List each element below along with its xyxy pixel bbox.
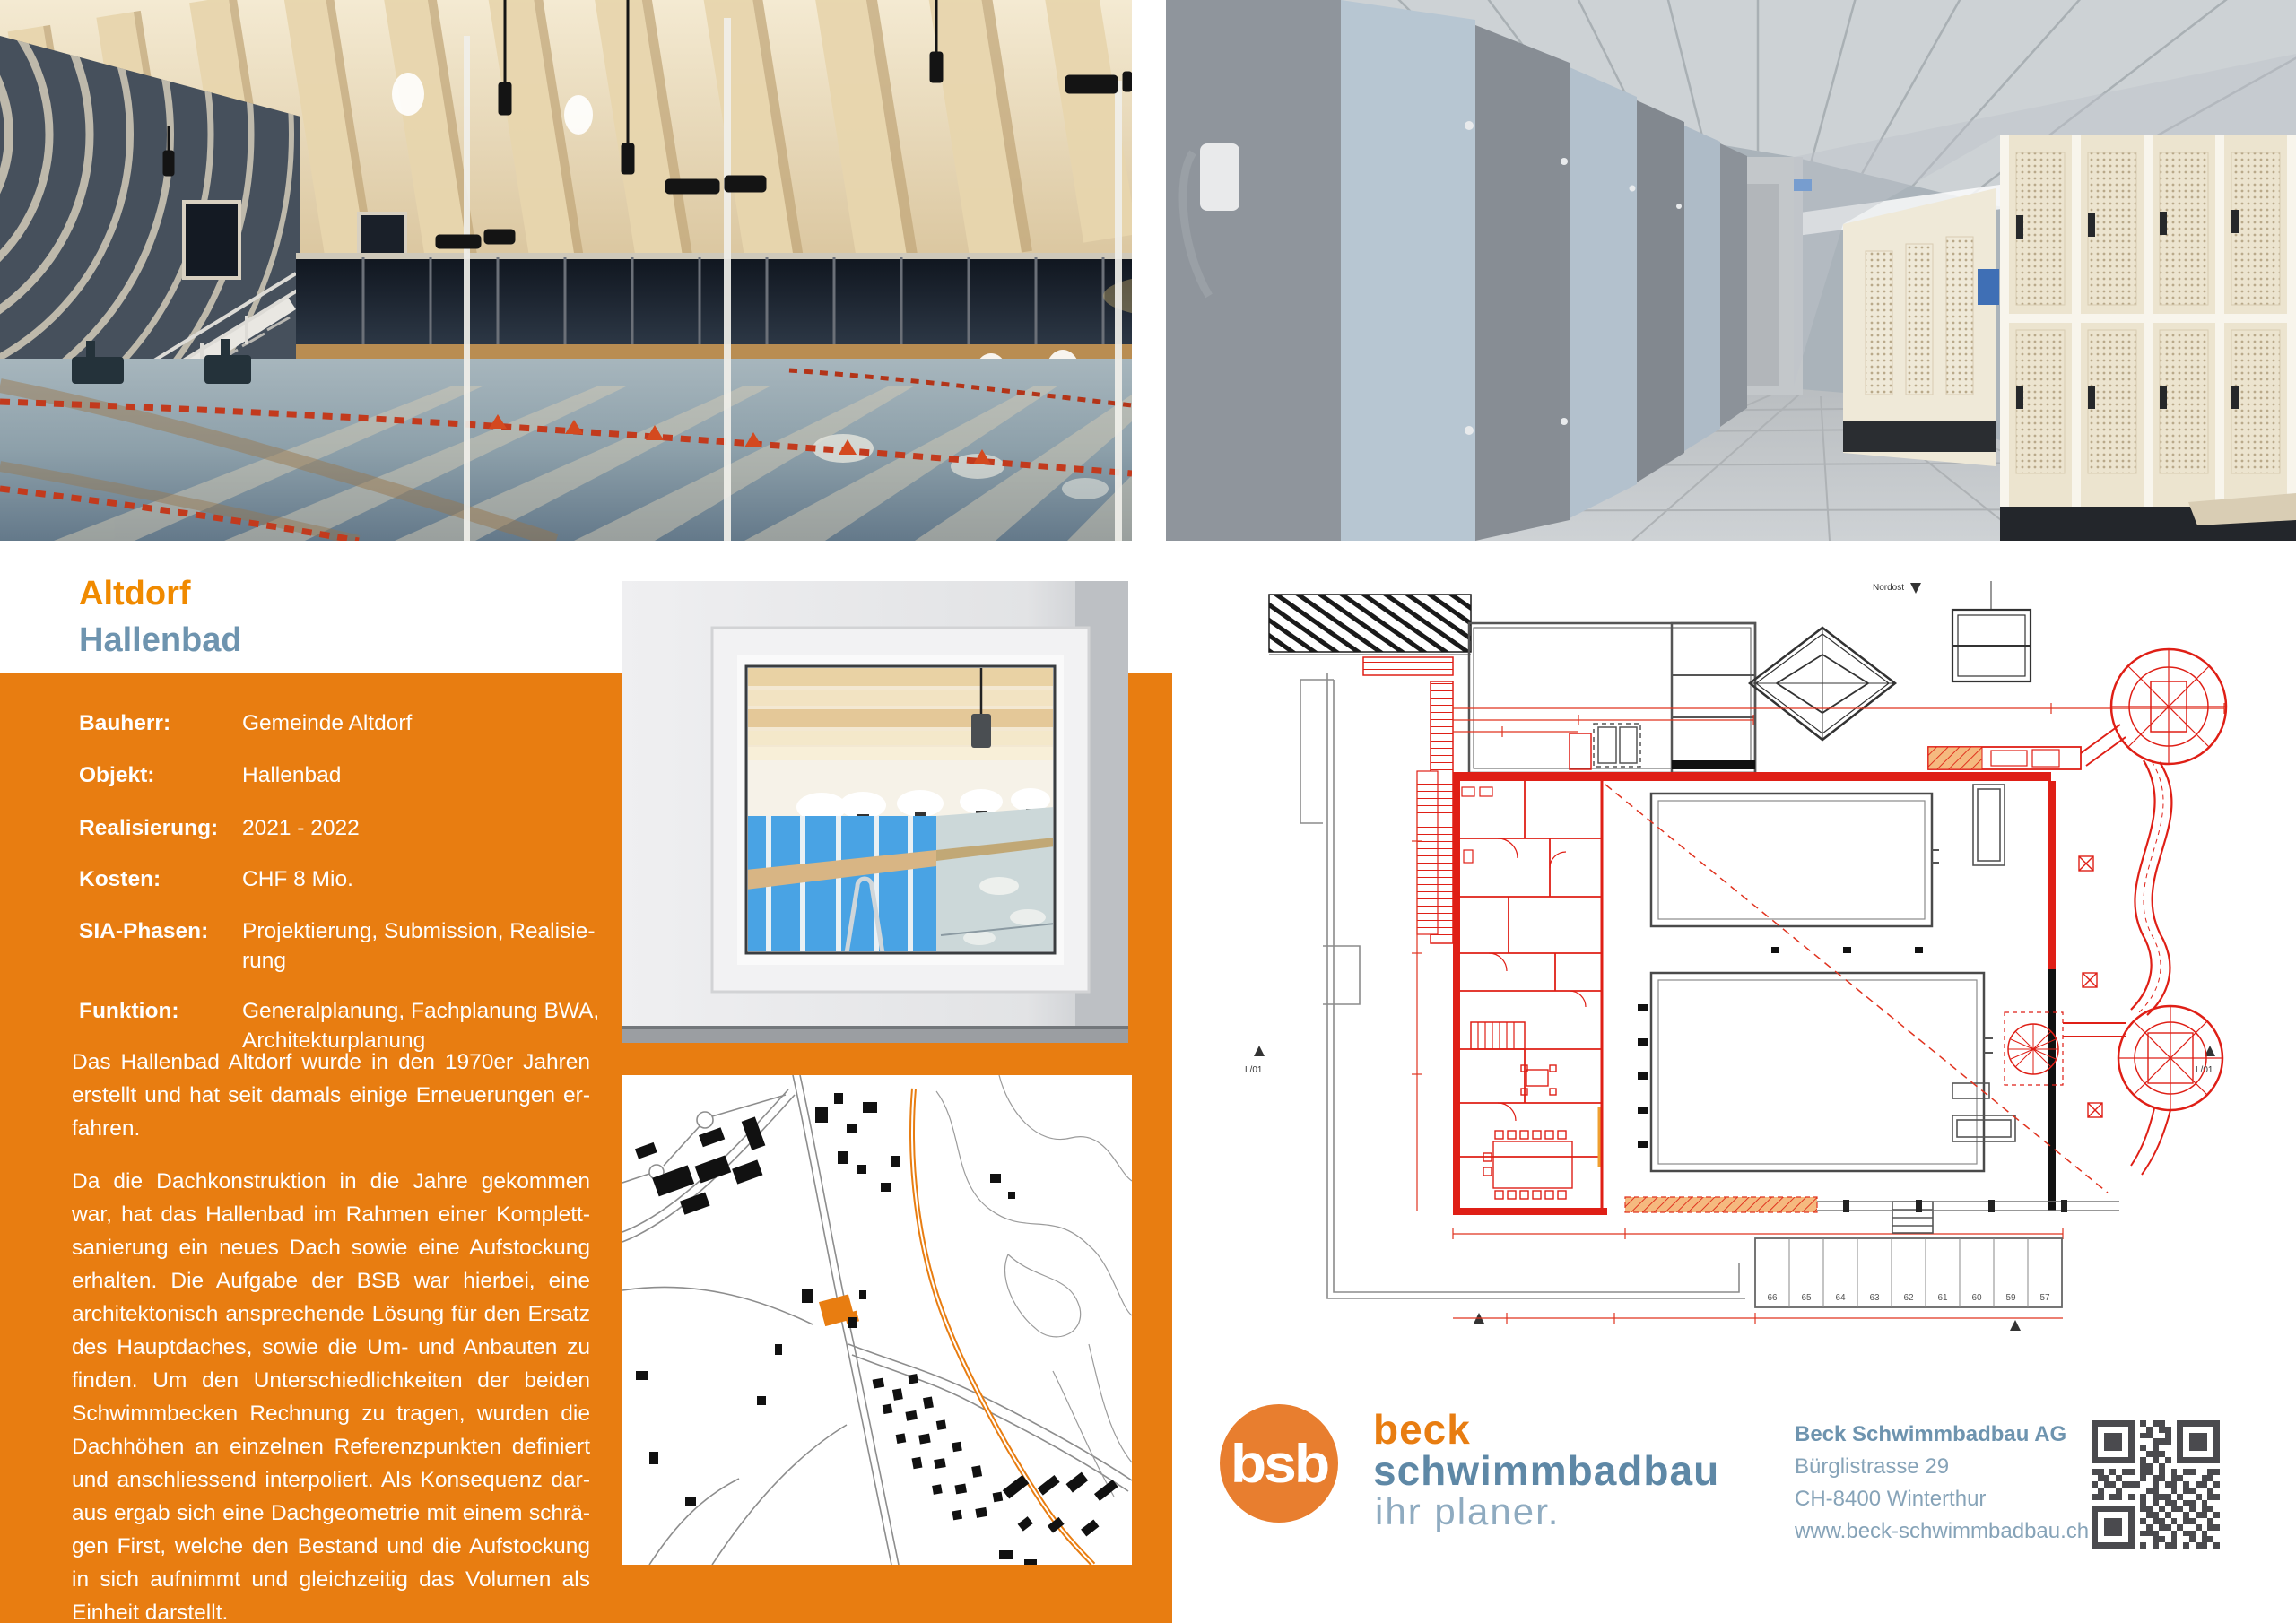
title-project-type: Hallenbad — [79, 617, 242, 664]
field-label: Kosten: — [79, 864, 161, 894]
view-wood-beams — [746, 666, 1055, 770]
address-street: Bürglistrasse 29 — [1795, 1451, 2089, 1483]
pool-upper — [1651, 794, 1932, 926]
field-label: Funktion: — [79, 996, 179, 1026]
site-map — [622, 1075, 1132, 1565]
page-title: Altdorf Hallenbad — [79, 570, 242, 664]
brochure-page: Altdorf Hallenbad Bauherr: Gemeinde Altd… — [0, 0, 2296, 1623]
photo-changing-rooms — [1166, 0, 2296, 541]
exterior-stair — [1363, 657, 1453, 675]
pool-view — [746, 666, 1055, 953]
description-paragraph-1: Das Hallenbad Altdorf wurde in den 1970e… — [72, 1046, 590, 1145]
logo-word-schwimmbadbau: schwimmbadbau — [1373, 1446, 1719, 1495]
qr-code — [2092, 1420, 2220, 1549]
existing-wall — [2048, 969, 2056, 1211]
photo-window-view — [622, 581, 1128, 1043]
floor-plan: Nordost L/01 L/01 — [1193, 554, 2296, 1408]
bsb-logo: bsb — [1220, 1404, 1338, 1523]
field-value: Projektierung, Submission, Realisie-rung — [242, 916, 628, 976]
pool-lower — [1651, 973, 1984, 1171]
field-value: 2021 - 2022 — [242, 813, 628, 843]
field-label: Objekt: — [79, 760, 154, 790]
company-name: Beck Schwimmbadbau AG — [1795, 1419, 2089, 1451]
locker-sign — [1978, 269, 1999, 305]
svg-text:64: 64 — [1835, 1293, 1846, 1303]
field-label: SIA-Phasen: — [79, 916, 208, 946]
field-label: Bauherr: — [79, 708, 170, 738]
svg-text:57: 57 — [2039, 1293, 2050, 1303]
svg-text:63: 63 — [1869, 1293, 1880, 1303]
svg-text:60: 60 — [1971, 1293, 1982, 1303]
field-label: Realisierung: — [79, 813, 218, 843]
view-glass-wall — [746, 816, 936, 953]
glass-facade — [296, 253, 1132, 359]
view-pool-water — [936, 807, 1055, 953]
field-value: CHF 8 Mio. — [242, 864, 628, 894]
address-city: CH-8400 Winterthur — [1795, 1483, 2089, 1515]
field-value: Gemeinde Altdorf — [242, 708, 628, 738]
svg-text:65: 65 — [1801, 1293, 1812, 1303]
floor-strip — [622, 1029, 1128, 1043]
mezzanine-window — [184, 202, 239, 278]
section-marker-left: L/01 — [1245, 1065, 1263, 1075]
logo-tagline: ihr planer. — [1375, 1490, 1560, 1533]
description-paragraph-2: Da die Dachkonstruktion in die Jahre gek… — [72, 1165, 590, 1623]
svg-text:61: 61 — [1937, 1293, 1948, 1303]
svg-text:66: 66 — [1767, 1293, 1778, 1303]
address-block: Beck Schwimmbadbau AG Bürglistrasse 29 C… — [1795, 1419, 2089, 1548]
svg-text:62: 62 — [1903, 1293, 1914, 1303]
svg-text:59: 59 — [2005, 1293, 2016, 1303]
website-link[interactable]: www.beck-schwimmbadbau.ch — [1795, 1515, 2089, 1548]
field-value: Hallenbad — [242, 760, 628, 790]
title-project-location: Altdorf — [79, 570, 242, 617]
photo-pool-hall — [0, 0, 1132, 541]
north-label: Nordost — [1873, 583, 1904, 593]
bsb-monogram: bsb — [1231, 1432, 1327, 1495]
